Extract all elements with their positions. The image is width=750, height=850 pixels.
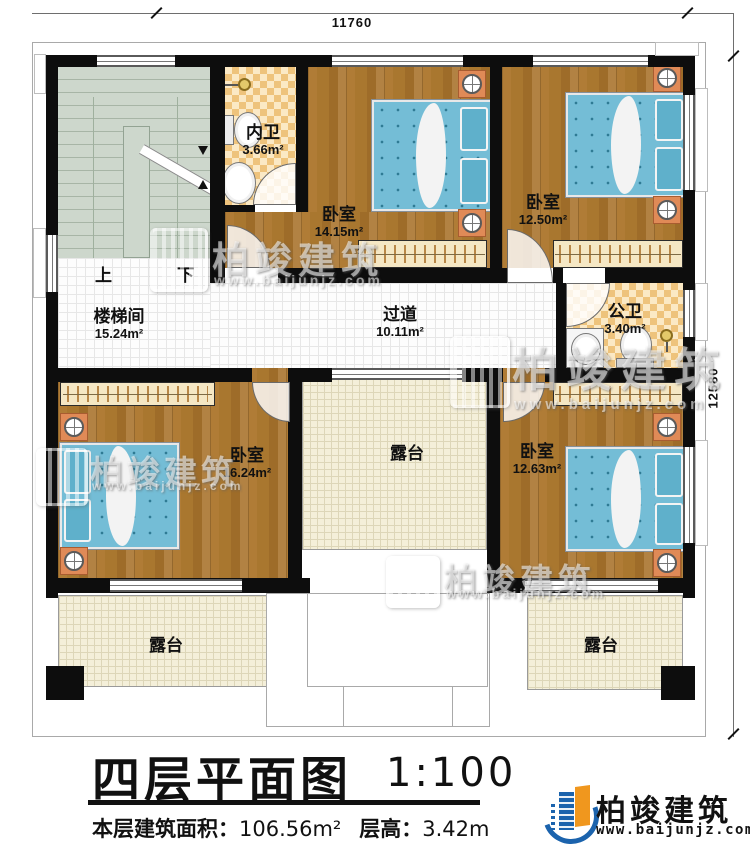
wall-innerbath-right — [296, 55, 308, 212]
wall-corridor-bottom-d — [545, 368, 683, 382]
wardrobe — [553, 240, 683, 268]
shower-head-icon — [238, 78, 251, 91]
nightstand — [60, 547, 88, 575]
wall-terrace-mid-right — [487, 368, 500, 593]
window — [332, 55, 463, 67]
stair-arrow-up-icon — [198, 180, 208, 189]
nightstand — [458, 209, 486, 237]
wardrobe-rail — [555, 394, 680, 395]
room-name: 露台 — [584, 637, 618, 656]
bed-pillow — [460, 158, 488, 204]
title-underline — [88, 800, 480, 805]
bed-pillow — [655, 147, 683, 191]
room-label-bedroom-top-left: 卧室 14.15m² — [315, 206, 363, 239]
window — [97, 55, 175, 67]
window-sill — [655, 42, 699, 56]
room-name: 露台 — [390, 445, 424, 464]
wall-corridor-top-b — [553, 268, 563, 283]
shower-arm-icon — [666, 342, 668, 352]
shower-head-icon — [660, 329, 673, 342]
room-name: 公卫 — [604, 303, 645, 322]
stair-down-label: 下 — [177, 261, 194, 286]
nightstand — [60, 413, 88, 441]
sink-icon — [222, 162, 256, 204]
window-sill — [695, 88, 708, 192]
window — [533, 55, 648, 67]
wall-corridor-bottom-a — [46, 368, 252, 382]
wall-innerbath-bottom — [225, 205, 255, 212]
room-name: 过道 — [376, 306, 424, 325]
room-label-inner-bath: 内卫 3.66m² — [242, 124, 283, 157]
room-name: 内卫 — [242, 124, 283, 143]
logo-building-orange-icon — [575, 785, 590, 827]
room-area: 12.63m² — [513, 462, 561, 476]
bed — [566, 447, 687, 551]
room-name: 卧室 — [519, 194, 567, 213]
room-area: 3.40m² — [604, 322, 645, 336]
nightstand — [653, 549, 681, 577]
lower-roof-inner-outline — [307, 593, 488, 687]
stair-arrow-down-icon — [198, 146, 208, 155]
window — [683, 290, 695, 337]
sliding-door — [110, 579, 242, 592]
bed-blanket — [416, 103, 446, 208]
lamp-icon — [657, 200, 677, 220]
bed — [60, 443, 179, 549]
company-website: www.baijunjz.com — [596, 822, 750, 838]
toilet-tank-icon — [224, 115, 234, 145]
plan-subtitle: 本层建筑面积：106.56m² 层高：3.42m — [92, 813, 489, 843]
room-label-corridor: 过道 10.11m² — [376, 306, 424, 339]
window — [683, 447, 695, 543]
bed-pillow — [64, 499, 91, 542]
room-label-bedroom-bottom-right: 卧室 12.63m² — [513, 443, 561, 476]
lamp-icon — [657, 417, 677, 437]
window — [683, 95, 695, 190]
plan-scale: 1:100 — [386, 750, 516, 796]
bed-blanket — [611, 96, 641, 194]
room-name: 卧室 — [513, 443, 561, 462]
wardrobe — [60, 382, 215, 406]
wardrobe-rail — [555, 254, 680, 255]
lamp-icon — [657, 68, 677, 88]
room-label-bedroom-bottom-left: 卧室 16.24m² — [223, 447, 271, 480]
wardrobe — [553, 382, 683, 406]
room-label-stairwell: 楼梯间 15.24m² — [94, 308, 145, 341]
floor-plan-image: 上 下 — [0, 0, 750, 850]
bed-pillow — [655, 99, 683, 141]
bed-blanket — [106, 446, 136, 546]
window-sill — [695, 440, 708, 546]
bed — [566, 93, 687, 197]
window-sill — [33, 228, 46, 298]
lamp-icon — [657, 553, 677, 573]
room-area: 16.24m² — [223, 466, 271, 480]
window-sill — [695, 283, 708, 341]
floor-area-label: 本层建筑面积： — [92, 818, 239, 841]
column-terrace-right — [661, 666, 695, 700]
wardrobe-rail — [360, 254, 484, 255]
lamp-icon — [64, 551, 84, 571]
room-name: 卧室 — [223, 447, 271, 466]
bed-pillow — [655, 453, 683, 497]
bed — [372, 100, 492, 211]
room-label-terrace-bottom-right: 露台 — [584, 637, 618, 656]
column-terrace-left — [46, 666, 84, 700]
sliding-door — [525, 579, 658, 592]
lamp-icon — [462, 74, 482, 94]
dimension-height-value: 12580 — [706, 367, 721, 408]
toilet-tank-icon — [616, 358, 654, 368]
floor-height-value: 3.42m — [422, 817, 489, 841]
nightstand — [653, 64, 681, 92]
bed-pillow — [460, 107, 488, 151]
wardrobe — [358, 240, 487, 268]
window — [46, 235, 58, 292]
wardrobe-rail — [63, 394, 213, 395]
room-area: 3.66m² — [242, 143, 283, 157]
bed-pillow — [64, 450, 91, 494]
room-area: 12.50m² — [519, 213, 567, 227]
wall-stairwell-right — [210, 55, 225, 283]
entry-step-line-right — [452, 687, 453, 727]
room-label-bedroom-top-right: 卧室 12.50m² — [519, 194, 567, 227]
room-area: 15.24m² — [94, 327, 145, 341]
room-area: 14.15m² — [315, 225, 363, 239]
lamp-icon — [64, 417, 84, 437]
nightstand — [653, 196, 681, 224]
logo-dots-icon — [551, 804, 555, 830]
wall-between-top-bedrooms — [490, 55, 502, 268]
dimension-width-value: 11760 — [332, 15, 372, 30]
room-label-terrace-bottom-left: 露台 — [149, 637, 183, 656]
room-label-public-bath: 公卫 3.40m² — [604, 303, 645, 336]
wall-corridor-top-c — [605, 268, 683, 283]
nightstand — [458, 70, 486, 98]
wall-publicbath-left — [556, 283, 566, 375]
dimension-line-right — [733, 13, 734, 737]
lamp-icon — [462, 213, 482, 233]
room-name: 露台 — [149, 637, 183, 656]
sink-icon — [571, 333, 601, 365]
bed-blanket — [611, 450, 641, 548]
logo-building-blue-icon — [559, 792, 574, 830]
room-label-terrace-middle: 露台 — [390, 445, 424, 464]
room-name: 楼梯间 — [94, 308, 145, 327]
wall-terrace-mid-left — [288, 368, 302, 593]
terrace-railing-window — [332, 368, 462, 380]
stair-up-label: 上 — [95, 261, 112, 286]
room-area: 10.11m² — [376, 325, 424, 339]
dimension-line-top — [32, 13, 733, 14]
window-sill — [34, 54, 46, 94]
bed-pillow — [655, 503, 683, 545]
floor-height-label: 层高： — [359, 818, 422, 841]
room-name: 卧室 — [315, 206, 363, 225]
wall-left — [46, 55, 58, 598]
nightstand — [653, 413, 681, 441]
floor-area-value: 106.56m² — [239, 817, 341, 841]
wall-corridor-top-a — [278, 268, 507, 283]
entry-step-line-left — [343, 687, 344, 727]
